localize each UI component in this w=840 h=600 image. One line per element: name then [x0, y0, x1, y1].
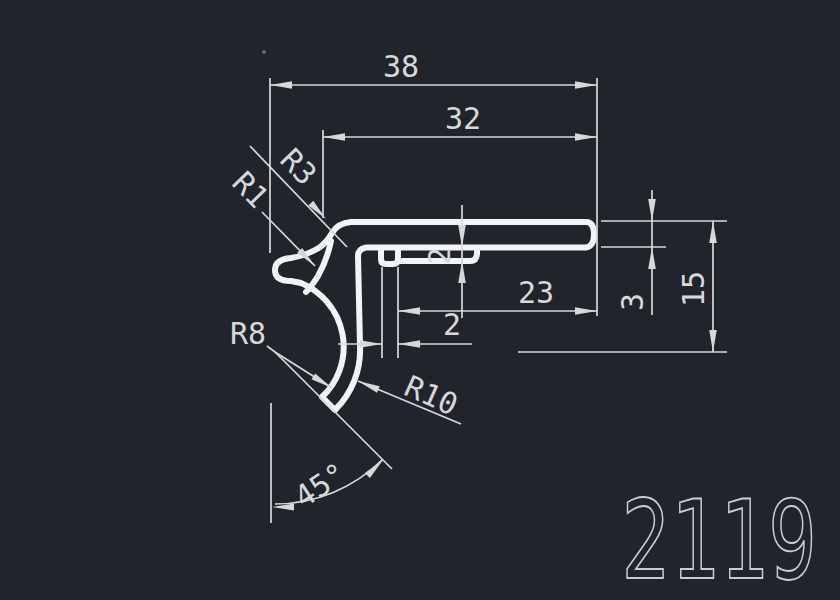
dim-15-arrow-bottom [709, 330, 717, 352]
leader-r8-label: R8 [230, 316, 266, 351]
dim-2-slot-label: 2 [443, 307, 461, 342]
dim-15-label: 15 [676, 271, 711, 307]
dim-32: 32 [323, 101, 597, 218]
dim-32-arrow-right [575, 133, 597, 141]
leader-r3-label: R3 [273, 142, 323, 192]
part-number: 2119 [621, 478, 817, 600]
angle-ray-diagonal [275, 352, 392, 469]
dim-3-arrow-bottom [648, 247, 656, 269]
dim-23-label: 23 [518, 275, 554, 310]
dim-2-lip-label: 2 [422, 247, 457, 265]
dim-23-arrow-left [398, 307, 420, 315]
dim-2-lip-arrow-top [458, 225, 466, 247]
dim-32-label: 32 [445, 101, 481, 136]
dim-3-label: 3 [615, 293, 650, 311]
angle-arrow-top [365, 460, 383, 478]
cad-canvas: 38 32 23 2 2 3 [0, 0, 840, 600]
drawing-svg: 38 32 23 2 2 3 [0, 0, 840, 600]
artifact-dot [262, 50, 266, 54]
dim-45-label: 45° [288, 456, 353, 515]
dim-38-label: 38 [383, 49, 419, 84]
dim-32-arrow-left [323, 133, 345, 141]
dim-15-arrow-top [709, 221, 717, 243]
dim-2-slot-arrow-left [360, 340, 382, 348]
leader-r8-arrow [312, 373, 333, 388]
leader-r10: R10 [358, 368, 463, 424]
dim-38-arrow-left [270, 81, 292, 89]
leader-r10-arrow [358, 381, 380, 393]
dim-23: 23 [398, 275, 597, 315]
dim-2-lip-arrow-bottom [458, 261, 466, 283]
dim-38-arrow-right [575, 81, 597, 89]
dim-3-arrow-top [648, 199, 656, 221]
dim-2-slot-arrow-right [398, 340, 420, 348]
leader-r10-label: R10 [399, 368, 463, 422]
dim-23-arrow-right [575, 307, 597, 315]
dim-45-angle: 45° [271, 403, 383, 523]
leader-r8: R8 [230, 316, 392, 469]
leader-r1-label: R1 [225, 165, 275, 215]
